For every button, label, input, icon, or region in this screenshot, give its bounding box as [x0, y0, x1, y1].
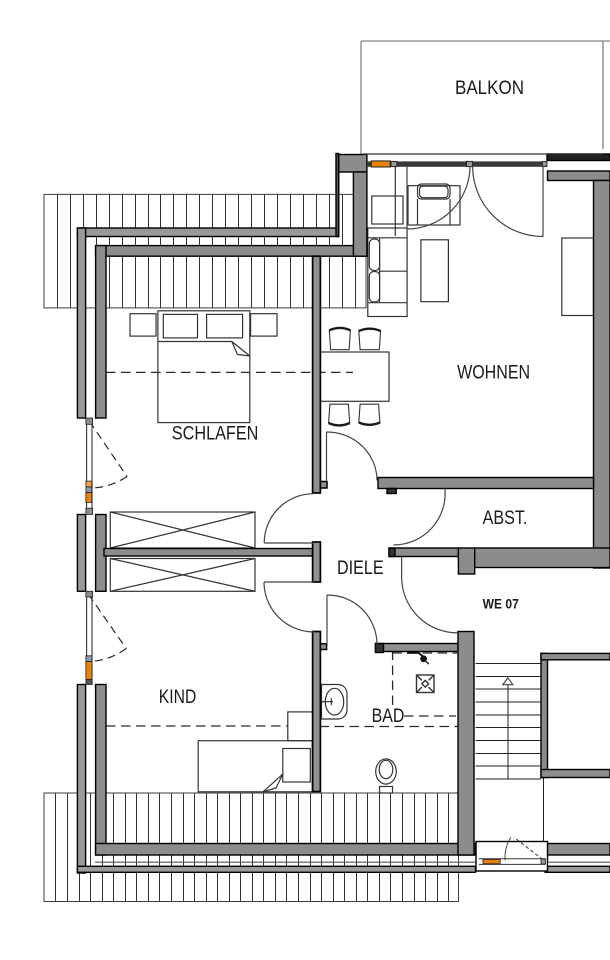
- svg-text:BAD: BAD: [372, 706, 405, 727]
- svg-text:KIND: KIND: [159, 687, 197, 708]
- svg-text:WE 07: WE 07: [483, 597, 519, 612]
- svg-text:WOHNEN: WOHNEN: [457, 362, 530, 383]
- svg-text:ABST.: ABST.: [483, 508, 528, 529]
- svg-text:BALKON: BALKON: [455, 78, 524, 99]
- svg-text:SCHLAFEN: SCHLAFEN: [172, 424, 259, 445]
- svg-text:DIELE: DIELE: [337, 558, 384, 579]
